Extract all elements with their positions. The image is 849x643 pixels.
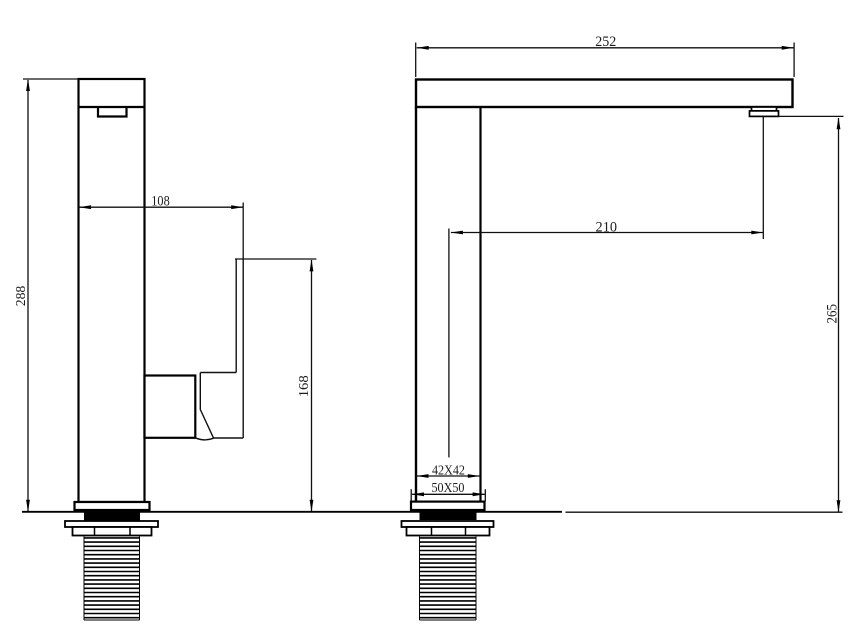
- svg-text:42X42: 42X42: [432, 464, 465, 479]
- svg-text:265: 265: [825, 304, 841, 324]
- svg-text:50X50: 50X50: [432, 481, 465, 496]
- svg-text:168: 168: [297, 375, 312, 397]
- svg-text:288: 288: [14, 286, 29, 307]
- svg-text:252: 252: [595, 34, 616, 50]
- svg-text:210: 210: [596, 220, 618, 236]
- svg-text:108: 108: [151, 194, 170, 210]
